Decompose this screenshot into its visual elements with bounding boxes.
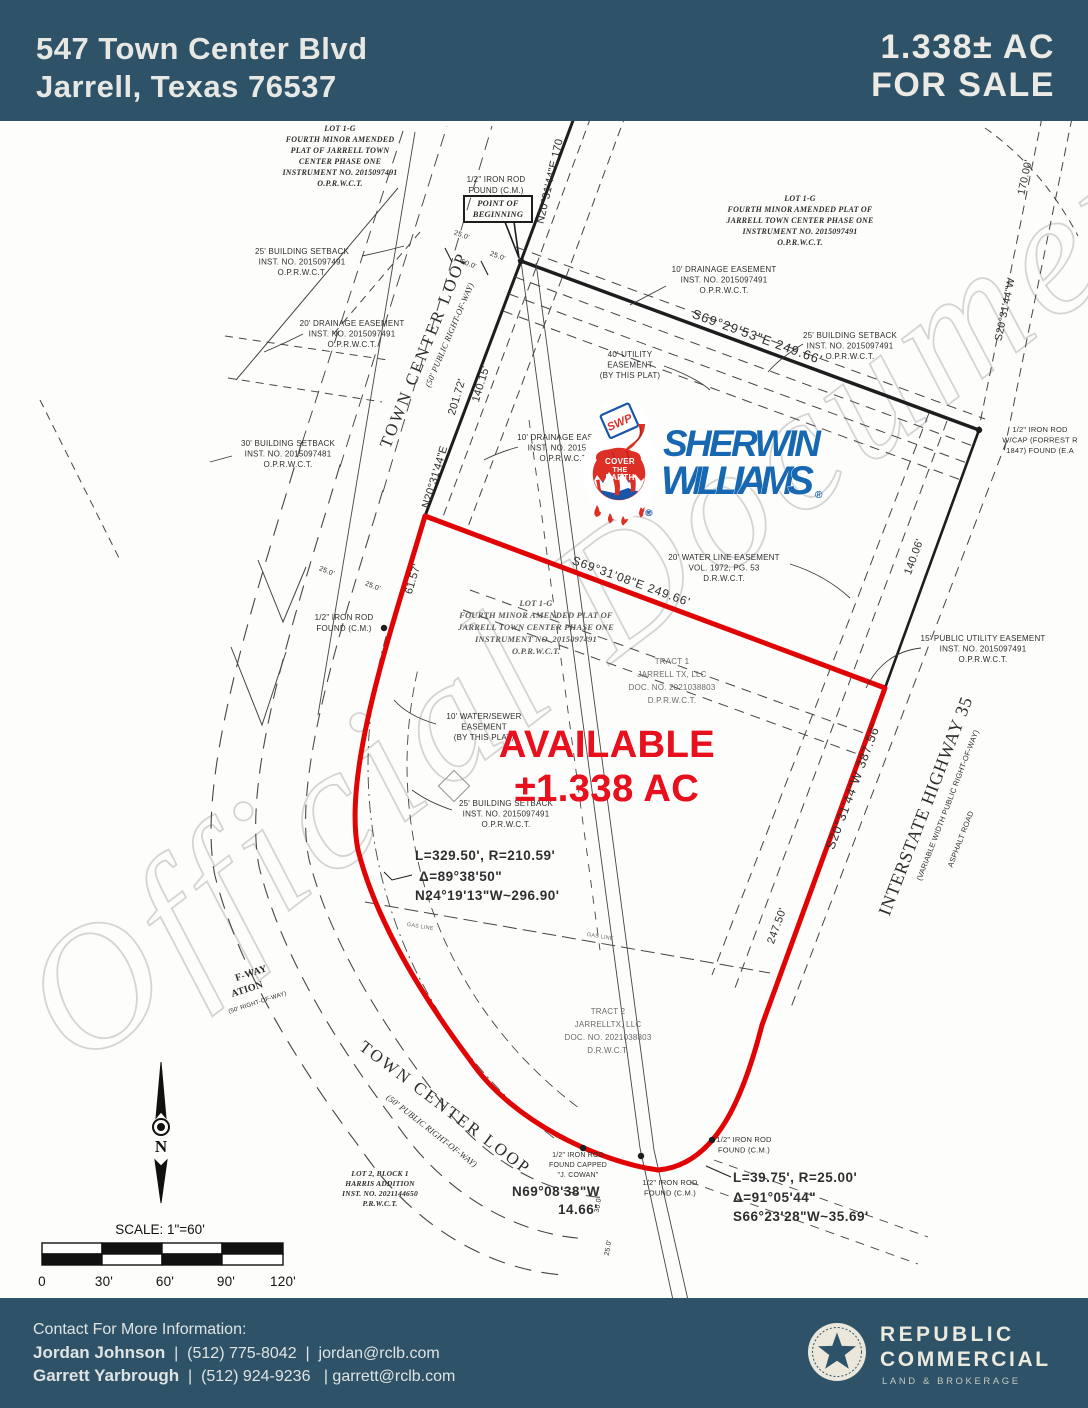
- svg-text:FOURTH MINOR AMENDED: FOURTH MINOR AMENDED: [285, 135, 395, 144]
- svg-text:15' PUBLIC UTILITY EASEMENT: 15' PUBLIC UTILITY EASEMENT: [920, 634, 1045, 643]
- svg-text:±1.338 AC: ±1.338 AC: [515, 768, 699, 810]
- svg-text:FOURTH MINOR AMENDED PLAT OF: FOURTH MINOR AMENDED PLAT OF: [458, 610, 613, 620]
- svg-text:JARRELL TOWN CENTER PHASE ONE: JARRELL TOWN CENTER PHASE ONE: [457, 622, 614, 632]
- svg-text:BEGINNING: BEGINNING: [472, 209, 524, 219]
- svg-text:INST. NO. 2015097491: INST. NO. 2015097491: [463, 810, 550, 819]
- svg-text:WILLIAMS: WILLIAMS: [661, 459, 814, 503]
- svg-text:O.P.R.W.C.T.: O.P.R.W.C.T.: [328, 340, 377, 349]
- svg-text:60': 60': [156, 1274, 174, 1289]
- svg-text:10' DRAINAGE EASEMENT: 10' DRAINAGE EASEMENT: [672, 265, 777, 274]
- svg-text:DOC. NO. 2021038803: DOC. NO. 2021038803: [565, 1033, 652, 1042]
- svg-text:D.R.W.C.T.: D.R.W.C.T.: [703, 574, 745, 583]
- svg-text:®: ®: [815, 490, 823, 501]
- svg-text:LOT 1-G: LOT 1-G: [323, 124, 355, 133]
- svg-text:INSTRUMENT NO. 2015097491: INSTRUMENT NO. 2015097491: [741, 227, 857, 236]
- svg-text:FOUND (C.M.): FOUND (C.M.): [468, 186, 523, 195]
- svg-text:N: N: [155, 1137, 168, 1156]
- svg-text:O.P.R.W.C.T.: O.P.R.W.C.T.: [700, 286, 749, 295]
- svg-text:O.P.R.W.C.T.: O.P.R.W.C.T.: [826, 352, 875, 361]
- svg-text:AVAILABLE: AVAILABLE: [499, 724, 715, 766]
- svg-text:COMMERCIAL: COMMERCIAL: [880, 1348, 1051, 1371]
- svg-text:L=329.50', R=210.59': L=329.50', R=210.59': [415, 848, 555, 863]
- svg-text:FOUND (C.M.): FOUND (C.M.): [644, 1189, 696, 1198]
- svg-text:W/CAP (FORREST R: W/CAP (FORREST R: [1002, 436, 1078, 445]
- svg-text:1847) FOUND (E.A: 1847) FOUND (E.A: [1006, 446, 1074, 455]
- svg-text:LOT 1-G: LOT 1-G: [783, 194, 815, 203]
- svg-text:1/2" IRON ROD: 1/2" IRON ROD: [552, 1152, 604, 1159]
- svg-text:1/2" IRON ROD: 1/2" IRON ROD: [642, 1178, 698, 1187]
- svg-text:FOUND CAPPED: FOUND CAPPED: [549, 1162, 607, 1169]
- svg-text:HARRIS ADDITION: HARRIS ADDITION: [344, 1179, 415, 1188]
- svg-text:JARRELLTX, LLC: JARRELLTX, LLC: [575, 1020, 642, 1029]
- svg-text:EARTH: EARTH: [605, 473, 634, 482]
- svg-text:INST. NO. 2021144650: INST. NO. 2021144650: [341, 1189, 418, 1198]
- svg-text:VOL. 1972, PG. 53: VOL. 1972, PG. 53: [689, 564, 760, 573]
- svg-text:SHERWIN: SHERWIN: [663, 423, 822, 464]
- svg-text:TRACT 2: TRACT 2: [591, 1007, 626, 1016]
- svg-text:O.P.R.W.C.T.: O.P.R.W.C.T.: [278, 268, 327, 277]
- svg-text:90': 90': [217, 1274, 235, 1289]
- svg-text:FOURTH MINOR AMENDED PLAT OF: FOURTH MINOR AMENDED PLAT OF: [727, 205, 873, 214]
- svg-text:30' BUILDING SETBACK: 30' BUILDING SETBACK: [241, 439, 335, 448]
- svg-text:EASEMENT: EASEMENT: [607, 361, 653, 370]
- svg-text:INST. NO. 2015097491: INST. NO. 2015097491: [807, 342, 894, 351]
- svg-text:INST. NO. 2015097491: INST. NO. 2015097491: [309, 330, 396, 339]
- svg-text:O.P.R.W.C.T.: O.P.R.W.C.T.: [540, 454, 589, 463]
- svg-text:1/2" IRON ROD: 1/2" IRON ROD: [716, 1135, 772, 1144]
- svg-text:INSTRUMENT NO. 2015097491: INSTRUMENT NO. 2015097491: [474, 634, 597, 644]
- svg-text:40' UTILITY: 40' UTILITY: [608, 350, 653, 359]
- svg-text:Δ=89°38'50": Δ=89°38'50": [419, 869, 502, 884]
- svg-text:25' BUILDING SETBACK: 25' BUILDING SETBACK: [803, 331, 897, 340]
- svg-text:D.P.R.W.C.T.: D.P.R.W.C.T.: [648, 696, 696, 705]
- svg-text:1/2" IRON ROD: 1/2" IRON ROD: [315, 613, 374, 622]
- svg-text:L=39.75', R=25.00': L=39.75', R=25.00': [733, 1170, 857, 1185]
- svg-text:1/2" IRON ROD: 1/2" IRON ROD: [1012, 425, 1068, 434]
- svg-text:O.P.R.W.C.T.: O.P.R.W.C.T.: [317, 179, 362, 188]
- svg-text:FOUND (C.M.): FOUND (C.M.): [316, 624, 371, 633]
- svg-text:DOC. NO. 2021038803: DOC. NO. 2021038803: [629, 683, 716, 692]
- svg-text:REPUBLIC: REPUBLIC: [880, 1323, 1015, 1346]
- svg-text:COVER: COVER: [605, 457, 635, 466]
- svg-text:INST. NO. 2015097491: INST. NO. 2015097491: [681, 276, 768, 285]
- svg-text:O.P.R.W.C.T.: O.P.R.W.C.T.: [264, 460, 313, 469]
- svg-text:S66°23'28"W~35.69': S66°23'28"W~35.69': [733, 1209, 869, 1224]
- svg-text:O.P.R.W.C.T.: O.P.R.W.C.T.: [512, 646, 560, 656]
- svg-text:25' BUILDING SETBACK: 25' BUILDING SETBACK: [255, 247, 349, 256]
- svg-text:O.P.R.W.C.T.: O.P.R.W.C.T.: [959, 655, 1008, 664]
- svg-text:0: 0: [38, 1274, 46, 1289]
- svg-text:120': 120': [270, 1274, 296, 1289]
- svg-text:PLAT OF JARRELL TOWN: PLAT OF JARRELL TOWN: [291, 146, 391, 155]
- svg-text:(BY THIS PLAT): (BY THIS PLAT): [600, 371, 661, 380]
- svg-text:P.R.W.C.T.: P.R.W.C.T.: [363, 1199, 398, 1208]
- svg-text:14.66': 14.66': [558, 1202, 598, 1217]
- svg-text:TRACT 1: TRACT 1: [655, 657, 690, 666]
- svg-text:20' DRAINAGE EASEMENT: 20' DRAINAGE EASEMENT: [300, 319, 405, 328]
- svg-text:®: ®: [646, 508, 653, 518]
- svg-text:N69°08'38"W: N69°08'38"W: [512, 1184, 600, 1199]
- svg-text:LOT 2, BLOCK 1: LOT 2, BLOCK 1: [350, 1169, 408, 1178]
- svg-text:JARRELL TOWN CENTER PHASE ONE: JARRELL TOWN CENTER PHASE ONE: [725, 216, 873, 225]
- svg-text:20' WATER LINE EASEMENT: 20' WATER LINE EASEMENT: [668, 553, 779, 562]
- svg-text:"J. COWAN": "J. COWAN": [558, 1172, 599, 1179]
- svg-text:FOUND (C.M.): FOUND (C.M.): [718, 1146, 770, 1155]
- svg-text:30': 30': [95, 1274, 113, 1289]
- svg-text:INSTRUMENT NO. 2015097491: INSTRUMENT NO. 2015097491: [281, 168, 397, 177]
- svg-text:LAND & BROKERAGE: LAND & BROKERAGE: [882, 1376, 1021, 1387]
- svg-text:O.P.R.W.C.T.: O.P.R.W.C.T.: [482, 820, 531, 829]
- svg-text:SCALE: 1"=60': SCALE: 1"=60': [115, 1222, 205, 1237]
- svg-text:JARRELL TX, LLC: JARRELL TX, LLC: [637, 670, 706, 679]
- svg-text:POINT OF: POINT OF: [477, 198, 519, 208]
- svg-text:O.P.R.W.C.T.: O.P.R.W.C.T.: [777, 238, 822, 247]
- svg-text:1/2" IRON ROD: 1/2" IRON ROD: [467, 175, 526, 184]
- svg-text:10' WATER/SEWER: 10' WATER/SEWER: [446, 712, 521, 721]
- svg-text:INST. NO. 2015097491: INST. NO. 2015097491: [259, 258, 346, 267]
- svg-text:Δ=91°05'44": Δ=91°05'44": [733, 1190, 816, 1205]
- svg-text:D.R.W.C.T.: D.R.W.C.T.: [587, 1046, 629, 1055]
- svg-text:CENTER PHASE ONE: CENTER PHASE ONE: [299, 157, 381, 166]
- svg-text:LOT 1-G: LOT 1-G: [518, 598, 553, 608]
- svg-text:N24°19'13"W~296.90': N24°19'13"W~296.90': [415, 888, 559, 903]
- svg-text:INST. NO. 2015097481: INST. NO. 2015097481: [245, 450, 332, 459]
- svg-text:INST. NO. 2015097491: INST. NO. 2015097491: [940, 645, 1027, 654]
